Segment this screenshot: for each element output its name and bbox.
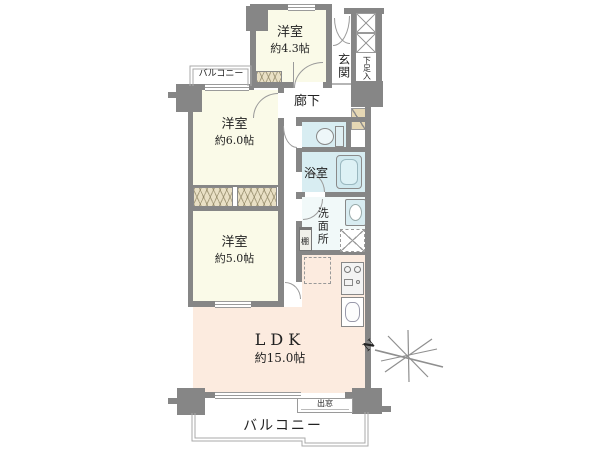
wall <box>193 185 278 187</box>
wall <box>188 206 284 211</box>
washing-machine-space <box>340 229 365 252</box>
door-arc <box>283 126 297 148</box>
window <box>205 84 249 91</box>
room-name: 洋室 <box>251 25 329 42</box>
balcony-top-label: バルコニー <box>192 69 250 81</box>
wall <box>376 12 382 83</box>
entrance-label: 玄関 <box>335 50 351 82</box>
room-size: 約4.3帖 <box>251 42 329 56</box>
room-name: 洋室 <box>191 235 278 252</box>
kitchen-stove-icon <box>356 280 360 284</box>
room-name: 洋室 <box>191 117 278 134</box>
wall <box>302 147 365 152</box>
hallway-label: 廊下 <box>294 94 320 111</box>
room-size: 約5.0帖 <box>191 252 278 266</box>
bathroom-label: 浴室 <box>304 166 328 182</box>
wall-tick <box>168 398 177 404</box>
wall <box>250 82 294 88</box>
shelf-label: 棚 <box>301 237 309 247</box>
pillar <box>352 388 382 414</box>
entrance-step-line <box>332 83 351 85</box>
wall <box>323 82 332 88</box>
room-size: 約6.0帖 <box>191 134 278 148</box>
pillar <box>351 81 383 107</box>
closet-hatch <box>193 187 233 207</box>
kitchen-stove-icon <box>344 279 353 286</box>
wall-tick <box>168 92 176 98</box>
bathtub-icon <box>340 159 358 185</box>
toilet-icon <box>335 126 344 147</box>
door-leaf <box>293 62 294 88</box>
washbasin-icon <box>349 204 362 221</box>
balcony-bottom-label: バルコニー <box>203 417 363 435</box>
wall <box>278 88 284 93</box>
kitchen-stove-icon <box>354 266 361 273</box>
room-label-west-5-0: 洋室 約5.0帖 <box>191 235 278 266</box>
washroom-label: 洗面所 <box>315 202 329 250</box>
kitchen-sink-icon <box>345 302 360 322</box>
room-label-ldk: LDK 約15.0帖 <box>205 330 355 366</box>
door-arc <box>285 282 301 299</box>
room-label-west-4-3: 洋室 約4.3帖 <box>251 25 329 56</box>
window <box>288 4 315 11</box>
compass-rose-icon <box>375 330 443 382</box>
window <box>215 392 301 399</box>
bay-window-label: 出窓 <box>297 399 353 409</box>
wall <box>296 117 302 126</box>
shoe-storage-label: 下足入 <box>361 54 371 82</box>
room-size: 約15.0帖 <box>205 351 355 367</box>
wall <box>296 152 302 172</box>
pillar <box>176 85 202 112</box>
sliding-door <box>215 301 251 308</box>
pillar <box>177 388 205 415</box>
wall <box>296 117 371 122</box>
floor-plan: 洋室 約4.3帖 洋室 約6.0帖 洋室 約5.0帖 LDK 約15.0帖 玄関… <box>0 0 600 450</box>
wall <box>296 255 302 282</box>
wall <box>296 192 302 199</box>
room-name: LDK <box>205 330 355 351</box>
kitchen-stove-icon <box>344 266 351 273</box>
shoe-cupboard-x-marks <box>356 33 376 53</box>
wall <box>251 301 284 307</box>
wall <box>188 301 215 307</box>
wall <box>278 211 284 301</box>
wall-tick <box>382 406 391 412</box>
room-label-west-6-0: 洋室 約6.0帖 <box>191 117 278 148</box>
wall <box>325 192 365 197</box>
toilet-icon <box>316 128 334 145</box>
shoe-cupboard-x-marks <box>356 13 376 33</box>
refrigerator-space <box>304 257 331 284</box>
closet-hatch <box>237 187 277 207</box>
